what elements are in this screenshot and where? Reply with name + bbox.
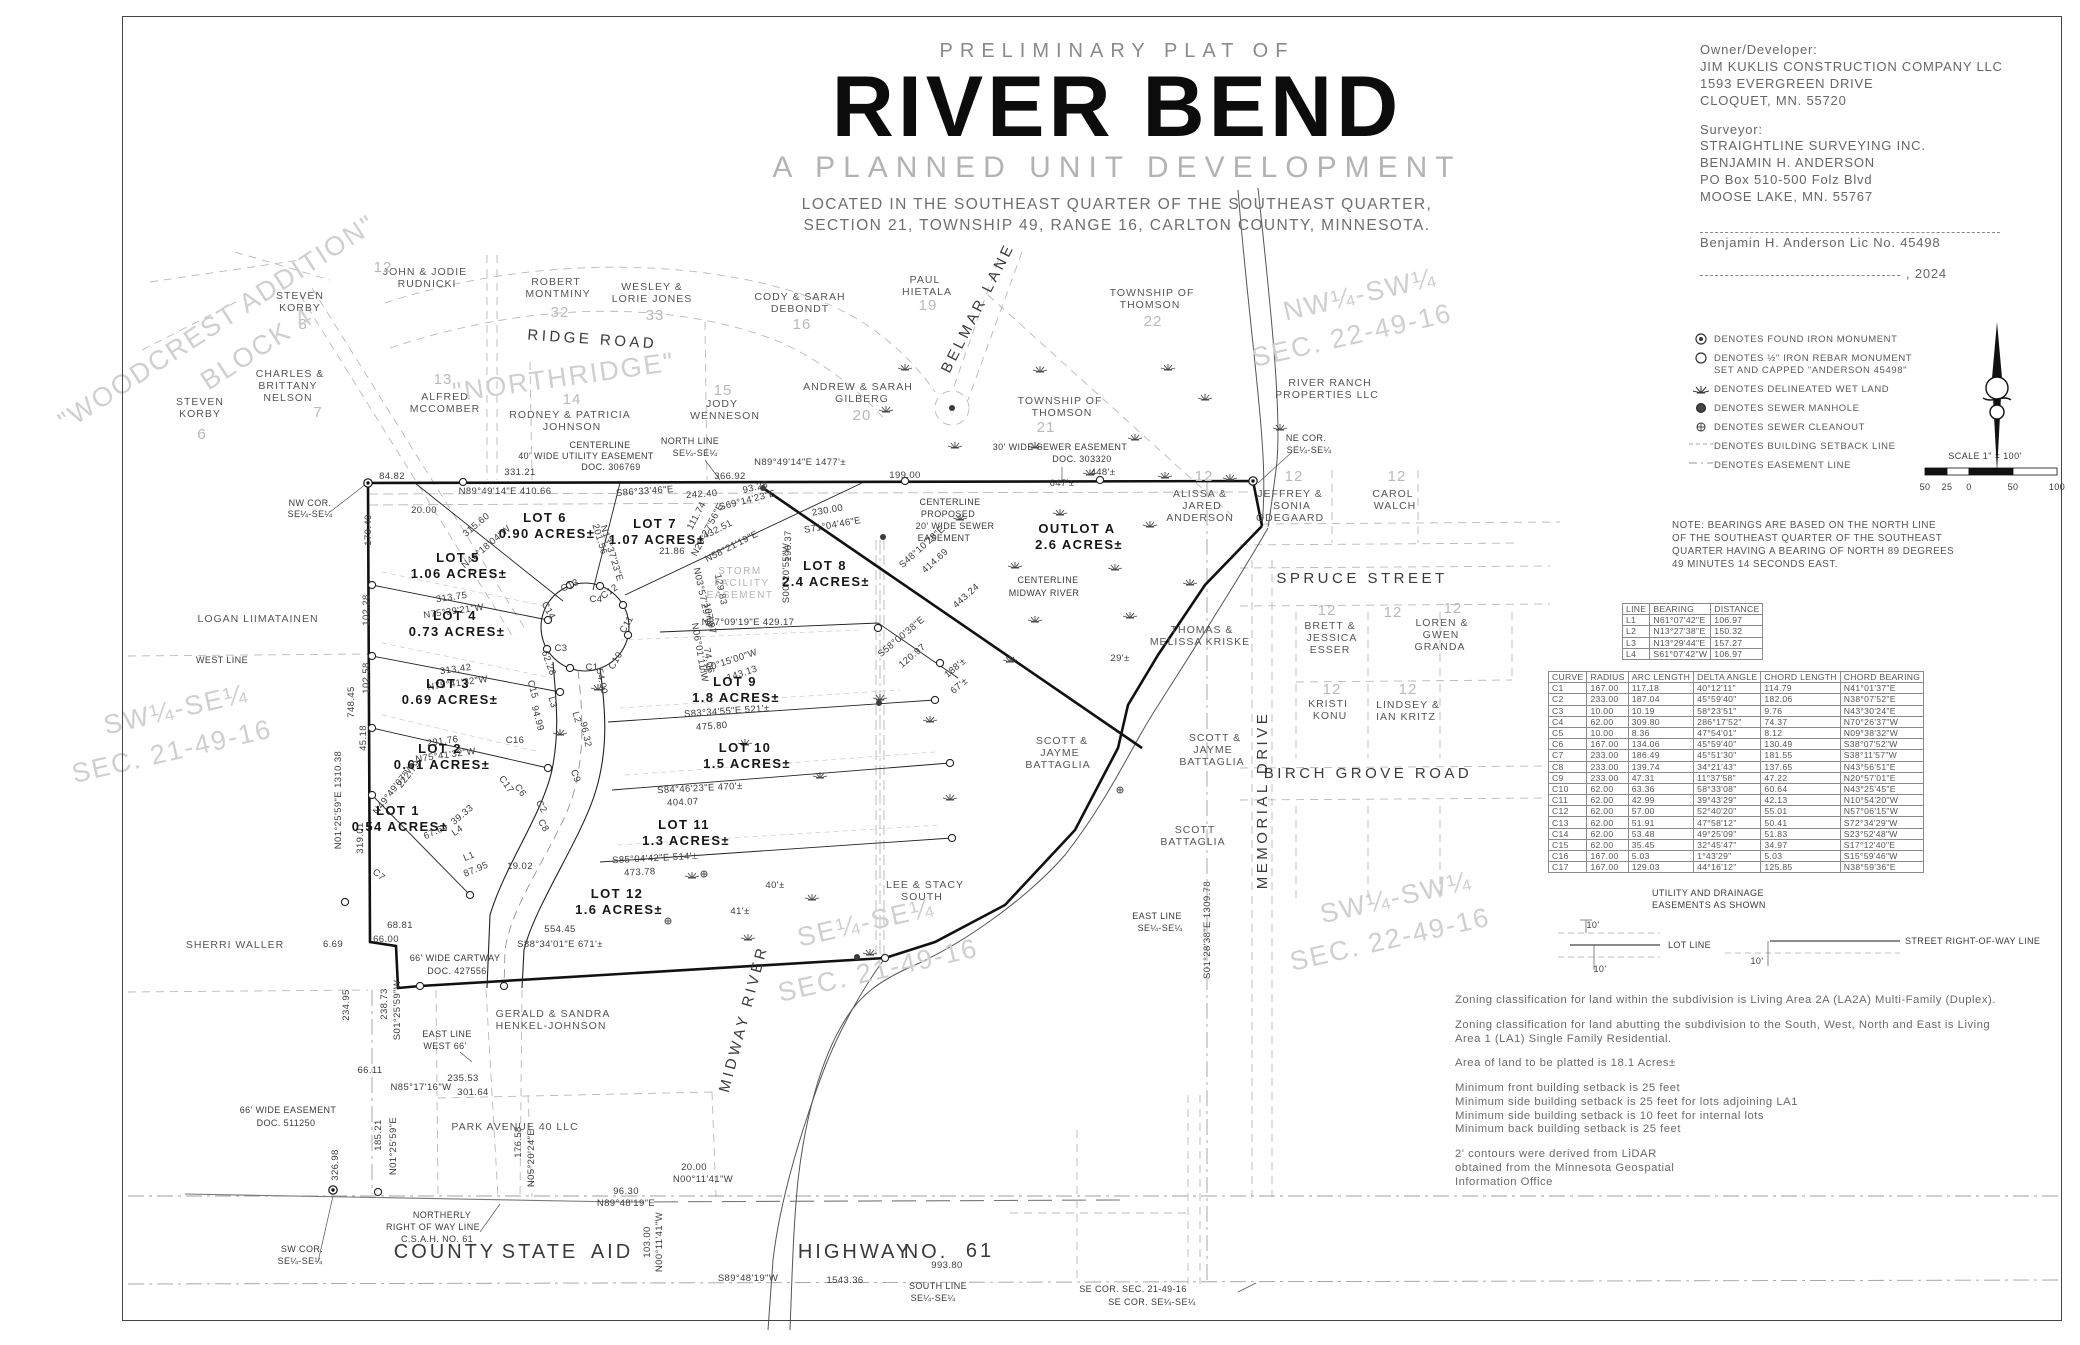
legend: DENOTES FOUND IRON MONUMENT DENOTES ½" I… [1688, 334, 2018, 479]
table-cell: 187.04 [1628, 694, 1693, 705]
table-cell: N38°07'52"E [1840, 694, 1923, 705]
table-cell: 51.83 [1761, 828, 1840, 839]
legend-item: DENOTES DELINEATED WET LAND [1688, 384, 2018, 396]
table-row: C16167.005.031°43'29"5.03S15°59'46"W [1549, 851, 1924, 862]
surveyor-line: MOOSE LAKE, MN. 55767 [1700, 189, 2070, 206]
table-cell: 9.76 [1761, 705, 1840, 716]
table-cell: 5.03 [1761, 851, 1840, 862]
table-cell: 117.18 [1628, 683, 1693, 694]
table-cell: N43°30'24"E [1840, 705, 1923, 716]
table-cell: 233.00 [1587, 694, 1628, 705]
table-cell: 114.79 [1761, 683, 1840, 694]
table-row: C1262.0057.0052°40'20"55.01N57°06'15"W [1549, 806, 1924, 817]
table-cell: 62.00 [1587, 716, 1628, 727]
table-cell: 52°40'20" [1694, 806, 1761, 817]
legend-label: DENOTES FOUND IRON MONUMENT [1714, 334, 1898, 346]
table-cell: 49°25'09" [1694, 828, 1761, 839]
table-cell: 106.97 [1711, 615, 1763, 626]
table-cell: 137.65 [1761, 761, 1840, 772]
table-cell: C8 [1549, 761, 1587, 772]
table-cell: 47°54'01" [1694, 727, 1761, 738]
legend-label: DENOTES DELINEATED WET LAND [1714, 384, 1889, 396]
table-header: ARC LENGTH [1628, 672, 1693, 683]
table-cell: C1 [1549, 683, 1587, 694]
table-row: C7233.00186.4945°51'30"181.55S38°11'57"W [1549, 750, 1924, 761]
table-cell: S38°11'57"W [1840, 750, 1923, 761]
table-header: CHORD LENGTH [1761, 672, 1840, 683]
table-cell: 233.00 [1587, 761, 1628, 772]
legend-item: DENOTES SEWER MANHOLE [1688, 403, 2018, 415]
legend-label: DENOTES BUILDING SETBACK LINE [1714, 441, 1896, 453]
table-cell: 233.00 [1587, 750, 1628, 761]
date-suffix: , 2024 [1906, 266, 1947, 281]
table-row: C1362.0051.9147°58'12"50.41S72°34'29"W [1549, 817, 1924, 828]
table-cell: 157.27 [1711, 637, 1763, 648]
table-cell: S72°34'29"W [1840, 817, 1923, 828]
table-cell: 286°17'52" [1694, 716, 1761, 727]
table-cell: 62.00 [1587, 828, 1628, 839]
table-cell: 45°59'40" [1694, 739, 1761, 750]
table-cell: 42.99 [1628, 795, 1693, 806]
table-row: L3N13°29'44"E157.27 [1623, 637, 1763, 648]
table-cell: S61°07'42"W [1650, 648, 1711, 659]
table-cell: L3 [1623, 637, 1650, 648]
table-row: C310.0010.1958°23'51"9.76N43°30'24"E [1549, 705, 1924, 716]
owner-heading: Owner/Developer: [1700, 42, 2070, 59]
legend-label: DENOTES ½" IRON REBAR MONUMENT SET AND C… [1714, 353, 1912, 377]
legend-label: DENOTES SEWER CLEANOUT [1714, 422, 1865, 434]
owner-line: 1593 EVERGREEN DRIVE [1700, 76, 2070, 93]
surveyor-line: STRAIGHTLINE SURVEYING INC. [1700, 138, 2070, 155]
table-header: DELTA ANGLE [1694, 672, 1761, 683]
table-row: C1462.0053.4849°25'09"51.83S23°52'48"W [1549, 828, 1924, 839]
table-row: C6167.00134.0645°59'40"130.49S38°07'52"W [1549, 739, 1924, 750]
table-cell: C9 [1549, 772, 1587, 783]
title-block: PRELIMINARY PLAT OF RIVER BEND A PLANNED… [752, 40, 1482, 237]
subtitle: A PLANNED UNIT DEVELOPMENT [752, 151, 1482, 185]
date-line: , 2024 [1700, 266, 2070, 283]
table-cell: 150.32 [1711, 626, 1763, 637]
table-row: C1562.0035.4532°45'47"34.97S17°12'40"E [1549, 839, 1924, 850]
legend-item: DENOTES FOUND IRON MONUMENT [1688, 334, 2018, 346]
table-cell: 134.06 [1628, 739, 1693, 750]
table-cell: C13 [1549, 817, 1587, 828]
table-cell: C4 [1549, 716, 1587, 727]
table-cell: N43°25'45"E [1840, 783, 1923, 794]
building-setback-line-icon [1688, 439, 1714, 449]
table-cell: N38°59'36"E [1840, 862, 1923, 873]
table-row: C1162.0042.9939°43'29"42.13N10°54'20"W [1549, 795, 1924, 806]
table-cell: 11°37'58" [1694, 772, 1761, 783]
table-cell: 45°51'30" [1694, 750, 1761, 761]
table-cell: 139.74 [1628, 761, 1693, 772]
table-cell: 10.00 [1587, 705, 1628, 716]
owner-line: CLOQUET, MN. 55720 [1700, 93, 2070, 110]
table-cell: N13°27'38"E [1650, 626, 1711, 637]
owner-line: JIM KUKLIS CONSTRUCTION COMPANY LLC [1700, 59, 2070, 76]
table-cell: 167.00 [1587, 851, 1628, 862]
table-cell: C3 [1549, 705, 1587, 716]
location-description: LOCATED IN THE SOUTHEAST QUARTER OF THE … [752, 195, 1482, 237]
table-row: C510.008.3647°54'01"8.12N09°38'32"W [1549, 727, 1924, 738]
table-cell: 309.80 [1628, 716, 1693, 727]
signature-line [1700, 232, 2000, 233]
table-cell: C6 [1549, 739, 1587, 750]
table-cell: L2 [1623, 626, 1650, 637]
table-cell: C7 [1549, 750, 1587, 761]
zoning-paragraph: Minimum front building setback is 25 fee… [1455, 1082, 2067, 1137]
table-cell: 47.22 [1761, 772, 1840, 783]
zoning-paragraph: Zoning classification for land within th… [1455, 994, 2067, 1008]
table-cell: 58°23'51" [1694, 705, 1761, 716]
table-header: CURVE [1549, 672, 1587, 683]
table-cell: 45°59'40" [1694, 694, 1761, 705]
table-cell: 51.91 [1628, 817, 1693, 828]
table-cell: 8.36 [1628, 727, 1693, 738]
bearings-note: NOTE: BEARINGS ARE BASED ON THE NORTH LI… [1672, 520, 1962, 572]
table-cell: 42.13 [1761, 795, 1840, 806]
table-cell: 62.00 [1587, 806, 1628, 817]
license-line: Benjamin H. Anderson Lic No. 45498 [1700, 235, 2070, 252]
surveyor-line: PO Box 510-500 Folz Blvd [1700, 172, 2070, 189]
legend-label: DENOTES SEWER MANHOLE [1714, 403, 1860, 415]
table-cell: 50.41 [1761, 817, 1840, 828]
table-cell: 32°45'47" [1694, 839, 1761, 850]
table-header: RADIUS [1587, 672, 1628, 683]
page-title: RIVER BEND [752, 67, 1482, 149]
table-cell: S15°59'46"W [1840, 851, 1923, 862]
line-table: LINEBEARINGDISTANCEL1N61°07'42"E106.97L2… [1622, 603, 1763, 660]
table-cell: C15 [1549, 839, 1587, 850]
zoning-notes: Zoning classification for land within th… [1455, 994, 2067, 1201]
wetland-icon [1688, 382, 1714, 396]
table-header: BEARING [1650, 604, 1711, 615]
table-cell: C14 [1549, 828, 1587, 839]
table-cell: C16 [1549, 851, 1587, 862]
table-cell: 63.36 [1628, 783, 1693, 794]
table-cell: C17 [1549, 862, 1587, 873]
table-cell: L1 [1623, 615, 1650, 626]
zoning-paragraph: Area of land to be platted is 18.1 Acres… [1455, 1057, 2067, 1071]
table-cell: 40°12'11" [1694, 683, 1761, 694]
table-cell: L4 [1623, 648, 1650, 659]
table-cell: 167.00 [1587, 862, 1628, 873]
table-cell: 35.45 [1628, 839, 1693, 850]
table-cell: 182.06 [1761, 694, 1840, 705]
table-cell: 47°58'12" [1694, 817, 1761, 828]
date-blank-line [1700, 275, 1900, 276]
table-cell: N57°06'15"W [1840, 806, 1923, 817]
table-cell: S23°52'48"W [1840, 828, 1923, 839]
table-cell: N10°54'20"W [1840, 795, 1923, 806]
table-row: L1N61°07'42"E106.97 [1623, 615, 1763, 626]
table-cell: 106.97 [1711, 648, 1763, 659]
sewer-manhole-icon [1688, 401, 1714, 415]
table-cell: C11 [1549, 795, 1587, 806]
located-line-1: LOCATED IN THE SOUTHEAST QUARTER OF THE … [752, 195, 1482, 216]
table-cell: 8.12 [1761, 727, 1840, 738]
table-row: L2N13°27'38"E150.32 [1623, 626, 1763, 637]
table-cell: 129.03 [1628, 862, 1693, 873]
table-cell: 74.37 [1761, 716, 1840, 727]
set-rebar-monument-icon [1688, 351, 1714, 365]
table-cell: 181.55 [1761, 750, 1840, 761]
table-header: DISTANCE [1711, 604, 1763, 615]
table-cell: S17°12'40"E [1840, 839, 1923, 850]
easement-line-icon [1688, 458, 1714, 468]
table-cell: N70°26'37"W [1840, 716, 1923, 727]
table-cell: 1°43'29" [1694, 851, 1761, 862]
table-cell: 34.97 [1761, 839, 1840, 850]
table-cell: N41°01'37"E [1840, 683, 1923, 694]
table-row: C1167.00117.1840°12'11"114.79N41°01'37"E [1549, 683, 1924, 694]
table-cell: N13°29'44"E [1650, 637, 1711, 648]
table-cell: C5 [1549, 727, 1587, 738]
table-cell: 10.19 [1628, 705, 1693, 716]
table-cell: 55.01 [1761, 806, 1840, 817]
table-cell: 39°43'29" [1694, 795, 1761, 806]
table-cell: C12 [1549, 806, 1587, 817]
table-cell: S38°07'52"W [1840, 739, 1923, 750]
legend-item: DENOTES EASEMENT LINE [1688, 460, 2018, 472]
table-cell: 44°16'12" [1694, 862, 1761, 873]
table-row: C462.00309.80286°17'52"74.37N70°26'37"W [1549, 716, 1924, 727]
owner-surveyor-block: Owner/Developer: JIM KUKLIS CONSTRUCTION… [1700, 42, 2070, 283]
table-header: LINE [1623, 604, 1650, 615]
table-row: C8233.00139.7434°21'43"137.65N43°56'51"E [1549, 761, 1924, 772]
plat-sheet: 84.8220.00331.21N89°49'14"E 410.66366.92… [0, 0, 2080, 1345]
table-cell: N20°57'01"E [1840, 772, 1923, 783]
table-cell: 167.00 [1587, 683, 1628, 694]
table-cell: N09°38'32"W [1840, 727, 1923, 738]
table-row: C17167.00129.0344°16'12"125.85N38°59'36"… [1549, 862, 1924, 873]
table-cell: 60.64 [1761, 783, 1840, 794]
table-cell: 62.00 [1587, 839, 1628, 850]
table-cell: 62.00 [1587, 783, 1628, 794]
table-cell: 167.00 [1587, 739, 1628, 750]
table-cell: C10 [1549, 783, 1587, 794]
table-cell: 233.00 [1587, 772, 1628, 783]
table-cell: 57.00 [1628, 806, 1693, 817]
table-cell: C2 [1549, 694, 1587, 705]
table-cell: 5.03 [1628, 851, 1693, 862]
table-cell: 62.00 [1587, 817, 1628, 828]
surveyor-line: BENJAMIN H. ANDERSON [1700, 155, 2070, 172]
legend-item: DENOTES BUILDING SETBACK LINE [1688, 441, 2018, 453]
found-iron-monument-icon [1688, 332, 1714, 346]
sewer-cleanout-icon [1688, 420, 1714, 434]
legend-label: DENOTES EASEMENT LINE [1714, 460, 1851, 472]
table-cell: 34°21'43" [1694, 761, 1761, 772]
table-row: L4S61°07'42"W106.97 [1623, 648, 1763, 659]
table-cell: 125.85 [1761, 862, 1840, 873]
table-row: C1062.0063.3658°33'08"60.64N43°25'45"E [1549, 783, 1924, 794]
table-header: CHORD BEARING [1840, 672, 1923, 683]
table-cell: 10.00 [1587, 727, 1628, 738]
table-cell: 130.49 [1761, 739, 1840, 750]
legend-item: DENOTES ½" IRON REBAR MONUMENT SET AND C… [1688, 353, 2018, 377]
surveyor-heading: Surveyor: [1700, 122, 2070, 139]
table-cell: 53.48 [1628, 828, 1693, 839]
zoning-paragraph: Zoning classification for land abutting … [1455, 1019, 2067, 1047]
table-row: C2233.00187.0445°59'40"182.06N38°07'52"E [1549, 694, 1924, 705]
curve-table: CURVERADIUSARC LENGTHDELTA ANGLECHORD LE… [1548, 671, 1924, 873]
table-cell: 62.00 [1587, 795, 1628, 806]
table-cell: N61°07'42"E [1650, 615, 1711, 626]
table-row: C9233.0047.3111°37'58"47.22N20°57'01"E [1549, 772, 1924, 783]
zoning-paragraph: 2' contours were derived from LiDAR obta… [1455, 1148, 2067, 1189]
table-cell: 47.31 [1628, 772, 1693, 783]
table-cell: 58°33'08" [1694, 783, 1761, 794]
located-line-2: SECTION 21, TOWNSHIP 49, RANGE 16, CARLT… [752, 216, 1482, 237]
table-cell: N43°56'51"E [1840, 761, 1923, 772]
legend-item: DENOTES SEWER CLEANOUT [1688, 422, 2018, 434]
table-cell: 186.49 [1628, 750, 1693, 761]
